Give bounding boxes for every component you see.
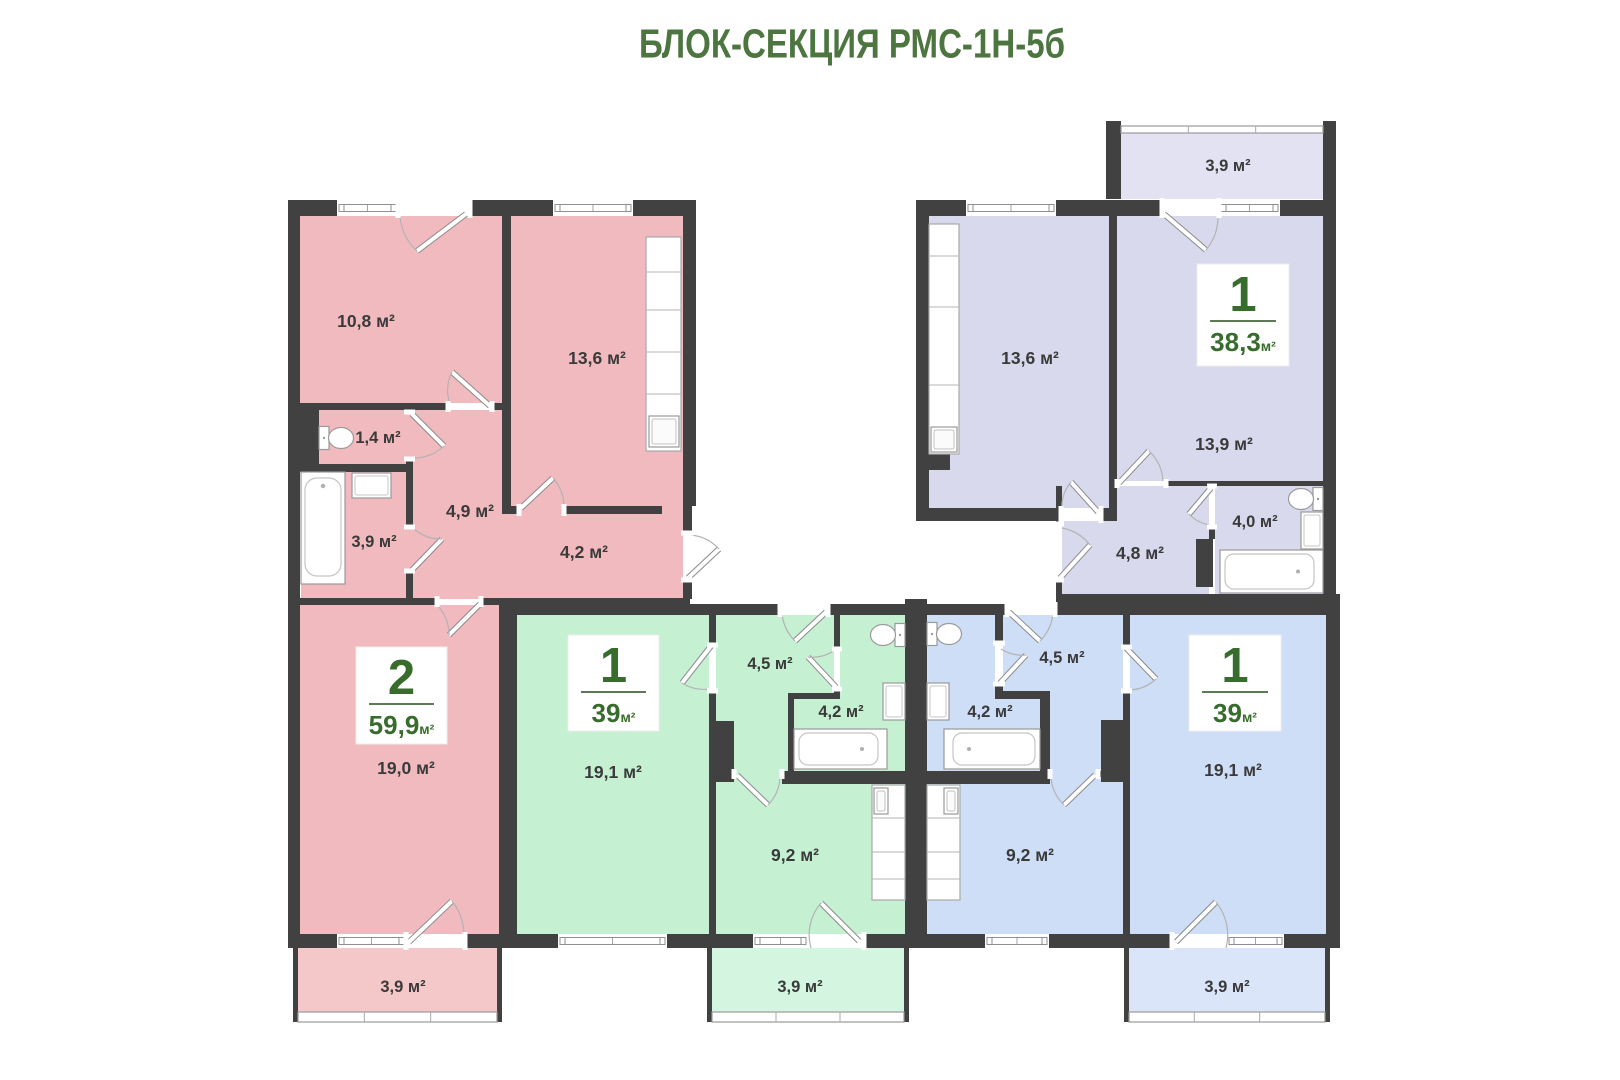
svg-text:3,9 м²: 3,9 м² — [777, 978, 823, 996]
svg-text:4,2 м²: 4,2 м² — [560, 542, 608, 562]
svg-text:1: 1 — [1221, 639, 1248, 693]
svg-text:4,5 м²: 4,5 м² — [1039, 649, 1085, 667]
svg-text:4,9 м²: 4,9 м² — [446, 501, 494, 521]
svg-text:4,2 м²: 4,2 м² — [818, 703, 864, 721]
svg-text:4,2 м²: 4,2 м² — [967, 703, 1013, 721]
svg-text:13,9 м²: 13,9 м² — [1195, 434, 1253, 454]
svg-text:1,4 м²: 1,4 м² — [355, 429, 401, 447]
svg-text:3,9 м²: 3,9 м² — [1205, 157, 1251, 175]
svg-text:19,1 м²: 19,1 м² — [584, 762, 642, 782]
svg-text:19,0 м²: 19,0 м² — [377, 758, 435, 778]
svg-text:3,9 м²: 3,9 м² — [380, 978, 426, 996]
svg-text:1: 1 — [1229, 268, 1256, 322]
svg-text:3,9 м²: 3,9 м² — [1204, 978, 1250, 996]
svg-text:4,8 м²: 4,8 м² — [1116, 543, 1164, 563]
svg-text:13,6 м²: 13,6 м² — [1001, 348, 1059, 368]
svg-text:4,0 м²: 4,0 м² — [1232, 513, 1278, 531]
svg-text:1: 1 — [600, 639, 627, 693]
svg-text:9,2 м²: 9,2 м² — [1006, 845, 1054, 865]
svg-text:2: 2 — [388, 651, 415, 705]
svg-text:9,2 м²: 9,2 м² — [771, 845, 819, 865]
svg-text:4,5 м²: 4,5 м² — [747, 655, 793, 673]
svg-text:3,9 м²: 3,9 м² — [351, 533, 397, 551]
svg-text:БЛОК-СЕКЦИЯ РМС-1Н-5б: БЛОК-СЕКЦИЯ РМС-1Н-5б — [639, 21, 1065, 67]
svg-text:10,8 м²: 10,8 м² — [337, 311, 395, 331]
svg-text:13,6 м²: 13,6 м² — [568, 348, 626, 368]
svg-text:19,1 м²: 19,1 м² — [1204, 760, 1262, 780]
